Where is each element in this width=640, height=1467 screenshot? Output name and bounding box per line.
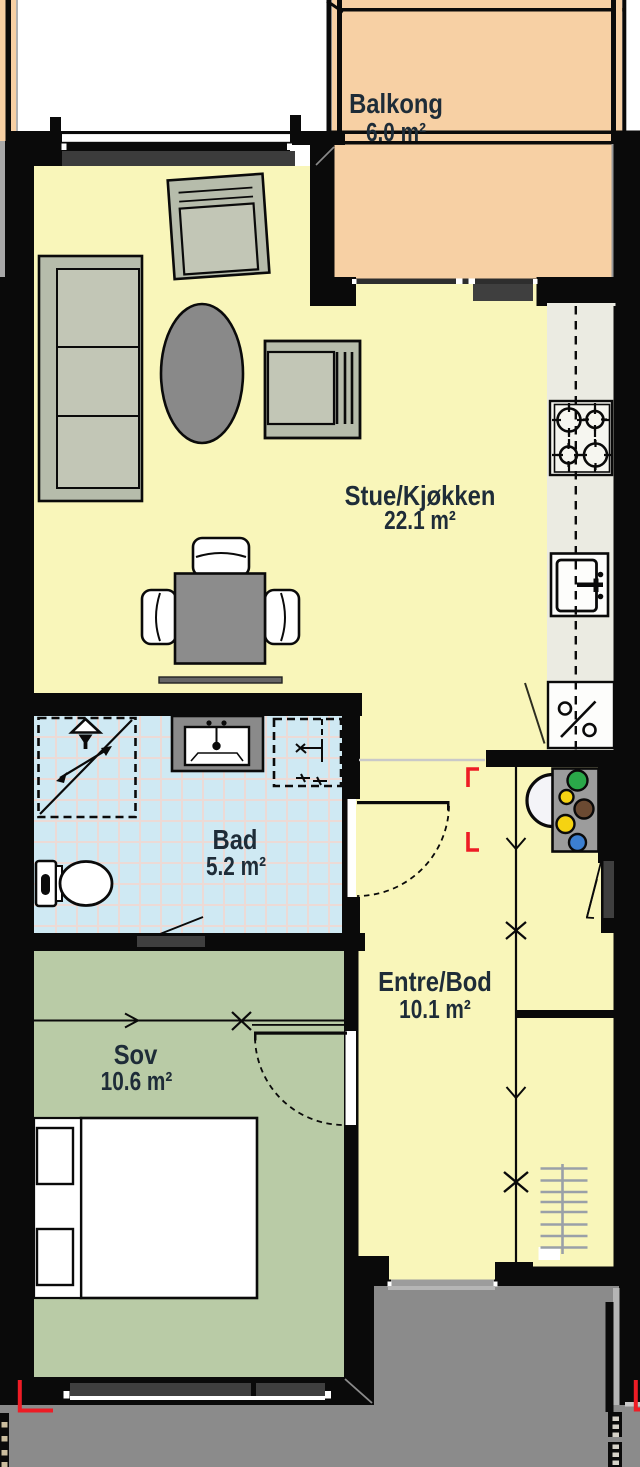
svg-text:5.2 m²: 5.2 m²: [206, 852, 266, 881]
svg-text:22.1 m²: 22.1 m²: [384, 506, 456, 535]
svg-text:Entre/Bod: Entre/Bod: [378, 965, 492, 997]
svg-text:10.6 m²: 10.6 m²: [101, 1067, 173, 1096]
svg-text:6.0 m²: 6.0 m²: [366, 118, 426, 147]
svg-text:Sov: Sov: [114, 1038, 158, 1070]
svg-text:10.1 m²: 10.1 m²: [399, 995, 471, 1024]
svg-text:Bad: Bad: [213, 823, 258, 855]
svg-text:Balkong: Balkong: [349, 87, 443, 119]
